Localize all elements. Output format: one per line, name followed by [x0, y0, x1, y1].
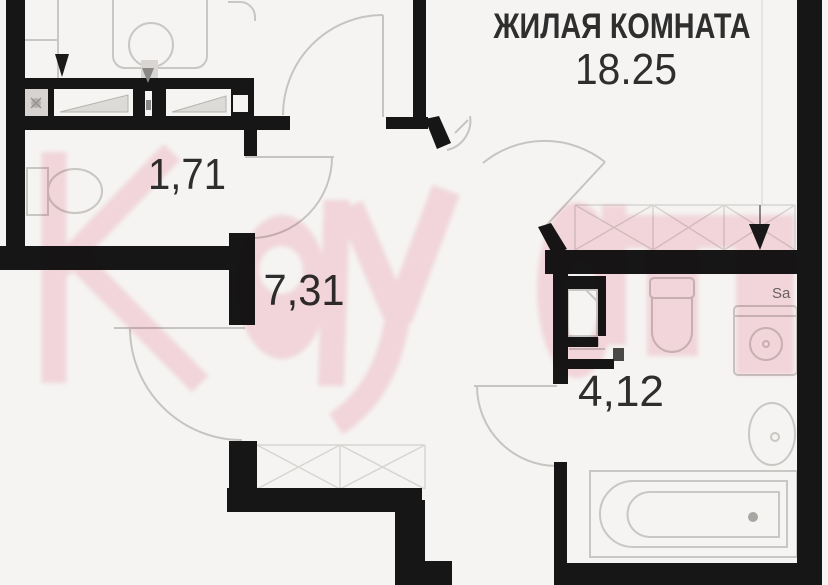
svg-text:18.25: 18.25	[575, 45, 677, 94]
svg-text:ЖИЛАЯ КОМНАТА: ЖИЛАЯ КОМНАТА	[493, 7, 751, 46]
svg-text:4,12: 4,12	[578, 367, 664, 416]
